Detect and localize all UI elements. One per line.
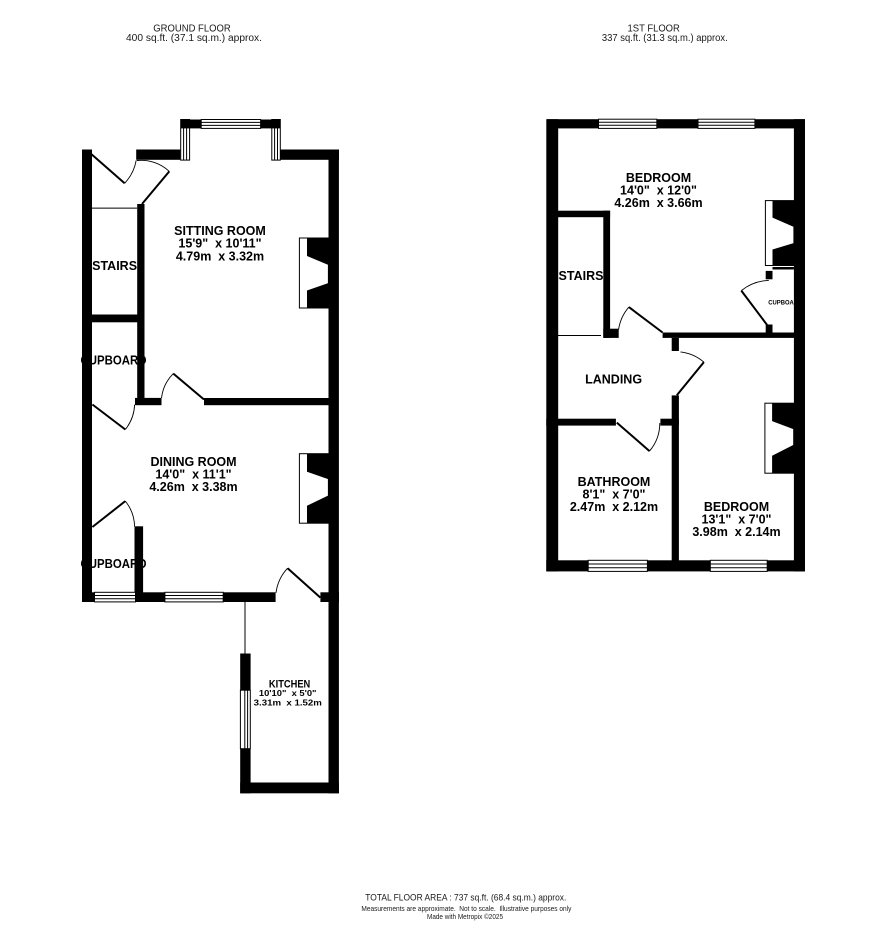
svg-text:337 sq.ft. (31.3 sq.m.) approx: 337 sq.ft. (31.3 sq.m.) approx. (602, 33, 728, 44)
svg-text:4.79m x 3.32m: 4.79m x 3.32m (176, 249, 264, 263)
svg-text:Made with Metropix ©2025: Made with Metropix ©2025 (427, 912, 503, 921)
svg-text:10'10" x 5'0": 10'10" x 5'0" (259, 688, 317, 698)
svg-text:400 sq.ft. (37.1 sq.m.) approx: 400 sq.ft. (37.1 sq.m.) approx. (126, 33, 262, 44)
svg-text:3.98m x 2.14m: 3.98m x 2.14m (692, 525, 780, 539)
svg-text:TOTAL FLOOR AREA : 737 sq.ft.: TOTAL FLOOR AREA : 737 sq.ft. (68.4 sq.m… (365, 892, 566, 903)
svg-text:4.26m x 3.38m: 4.26m x 3.38m (149, 480, 237, 494)
svg-text:STAIRS: STAIRS (92, 259, 137, 273)
svg-text:2.47m x 2.12m: 2.47m x 2.12m (570, 500, 658, 514)
svg-text:STAIRS: STAIRS (559, 269, 604, 283)
svg-text:LANDING: LANDING (585, 372, 642, 386)
svg-text:4.26m x 3.66m: 4.26m x 3.66m (614, 196, 702, 210)
svg-text:3.31m x 1.52m: 3.31m x 1.52m (254, 698, 323, 708)
